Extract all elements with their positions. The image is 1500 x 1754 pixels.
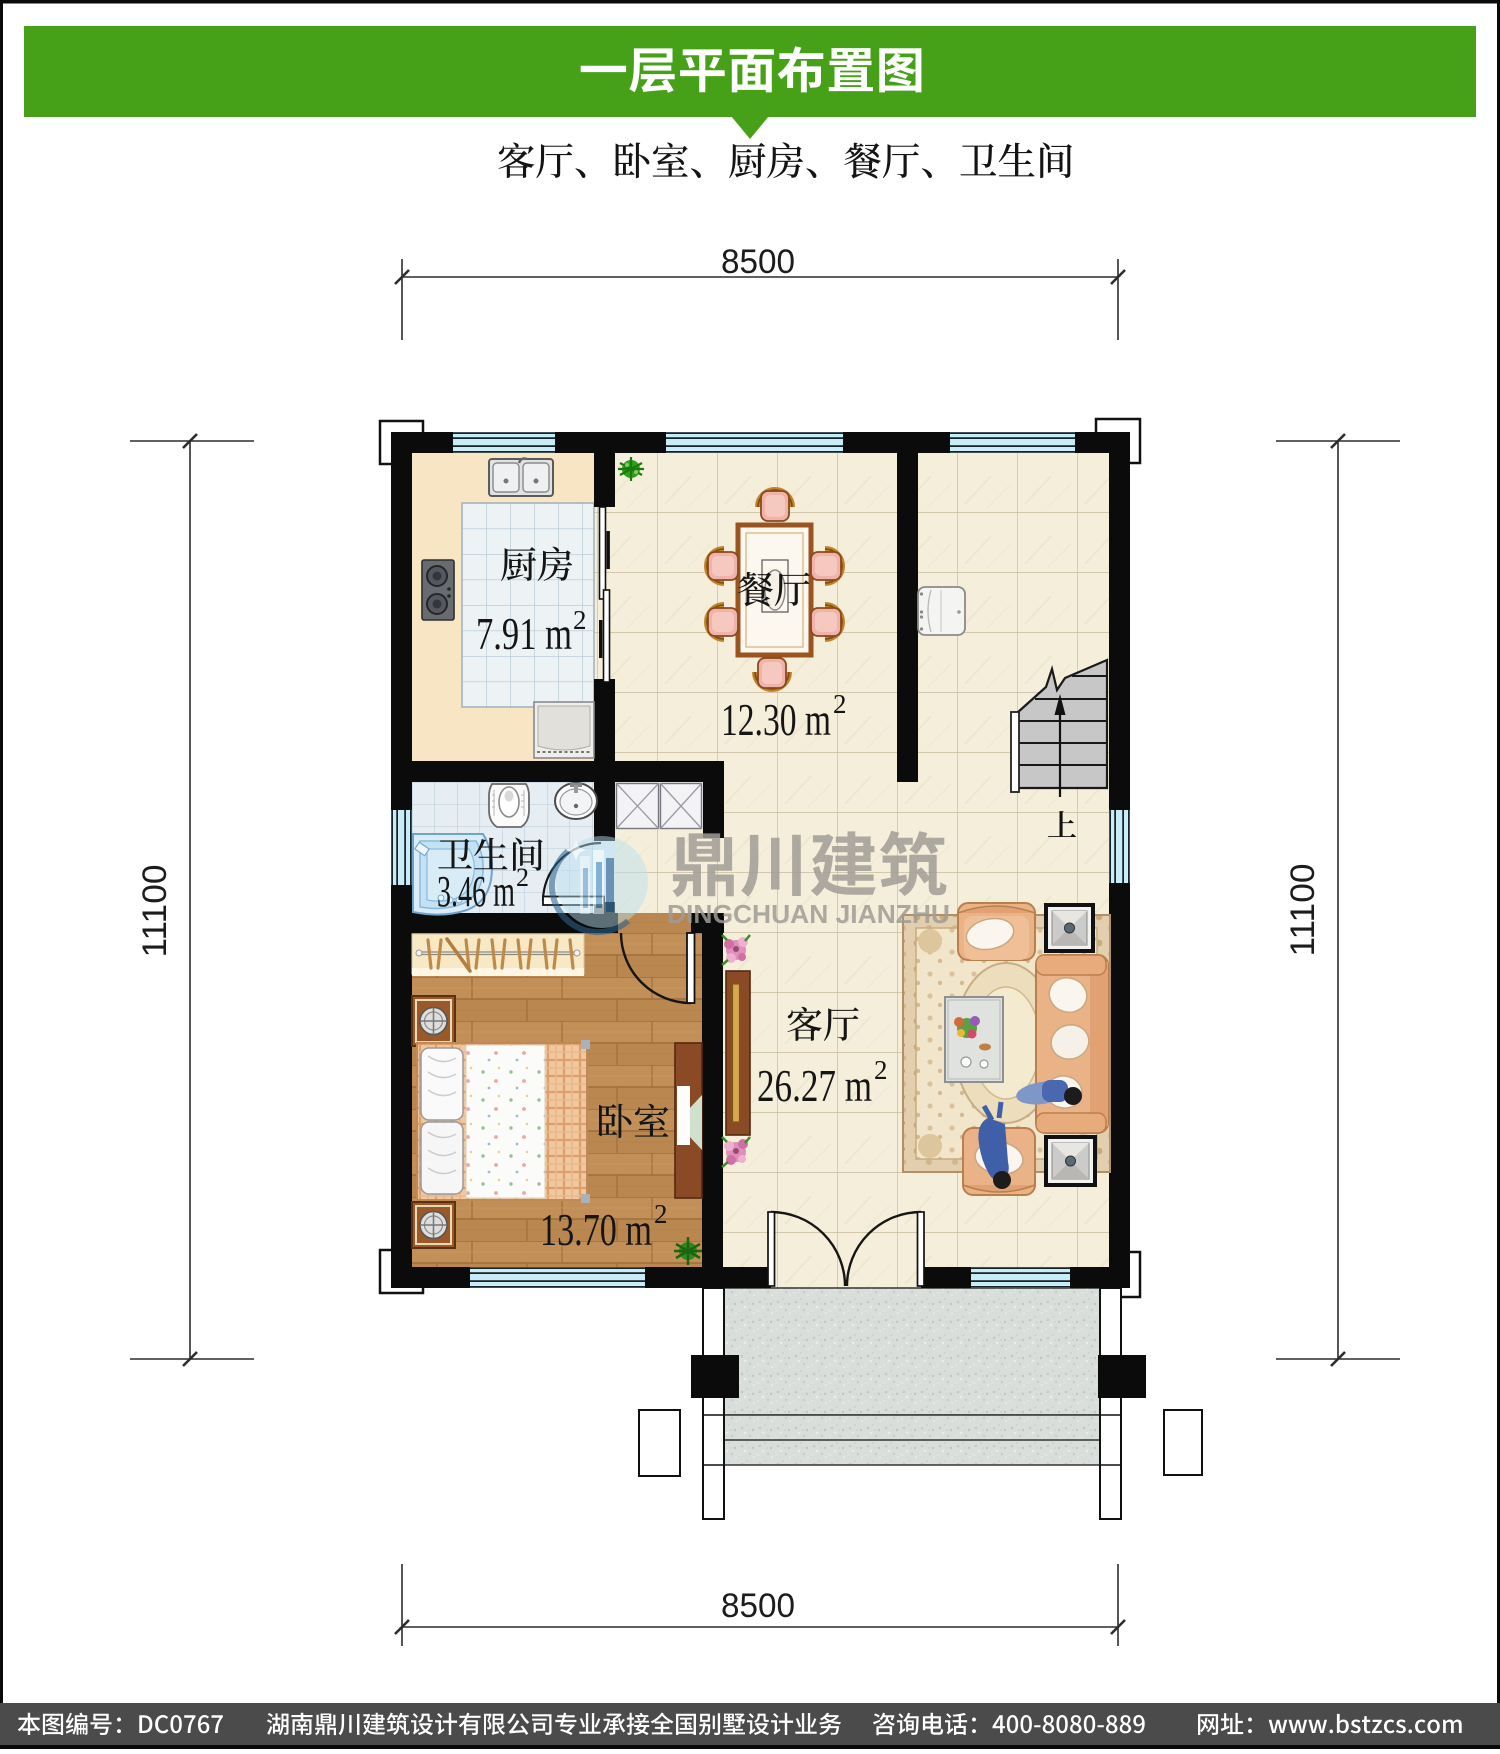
svg-text:2: 2 [833,689,847,719]
svg-text:11100: 11100 [136,865,174,958]
svg-text:3.46 m: 3.46 m [437,867,515,916]
svg-text:2: 2 [516,863,529,892]
svg-text:26.27 m: 26.27 m [757,1060,872,1111]
svg-text:12.30 m: 12.30 m [721,694,831,745]
svg-text:7.91 m: 7.91 m [476,608,572,659]
svg-text:2: 2 [573,605,587,635]
svg-text:8500: 8500 [721,243,795,281]
svg-text:11100: 11100 [1284,864,1322,957]
svg-text:2: 2 [654,1199,668,1229]
svg-text:8500: 8500 [721,1587,795,1625]
svg-text:2: 2 [874,1055,888,1085]
svg-text:13.70 m: 13.70 m [540,1204,652,1255]
svg-text:DINGCHUAN JIANZHU: DINGCHUAN JIANZHU [667,899,950,929]
